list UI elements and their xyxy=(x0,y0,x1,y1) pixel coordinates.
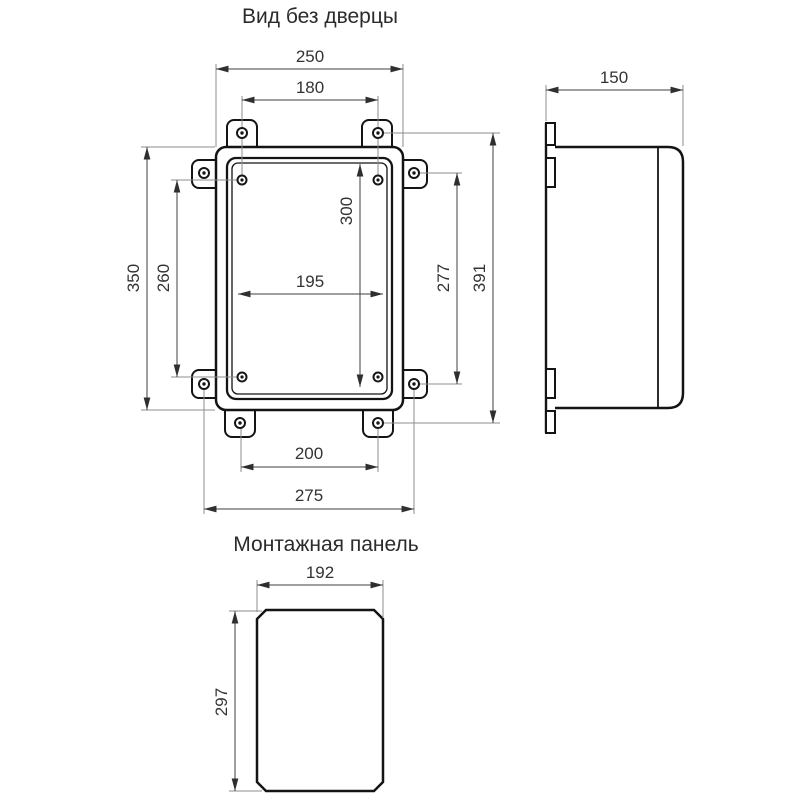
dim-label-350: 350 xyxy=(124,264,143,292)
technical-drawing-page: Вид без дверцы xyxy=(0,0,800,800)
hole-center-dot xyxy=(376,375,379,378)
hole-center-dot xyxy=(412,382,415,385)
dim-label-195: 195 xyxy=(296,272,324,291)
dim-label-250: 250 xyxy=(296,47,324,66)
front-view: Вид без дверцы xyxy=(124,5,500,514)
dim-label-391: 391 xyxy=(470,264,489,292)
dim-label-200: 200 xyxy=(295,444,323,463)
dim-label-180: 180 xyxy=(296,78,324,97)
dim-label-300: 300 xyxy=(337,197,356,225)
hole-center-dot xyxy=(238,421,241,424)
hole-center-dot xyxy=(202,382,205,385)
side-body-outline xyxy=(555,147,683,408)
hole-center-dot xyxy=(376,178,379,181)
dim-label-260: 260 xyxy=(154,264,173,292)
side-tab-top xyxy=(546,123,555,145)
enclosure-drawing: Вид без дверцы xyxy=(0,0,800,800)
dim-label-275: 275 xyxy=(295,486,323,505)
mounting-panel-outline xyxy=(257,610,383,791)
dim-label-192: 192 xyxy=(306,563,334,582)
panel-view-title: Монтажная панель xyxy=(233,533,418,556)
hole-center-dot xyxy=(376,421,379,424)
hole-center-dot xyxy=(240,131,243,134)
dim-label-277: 277 xyxy=(434,264,453,292)
side-tab-upper xyxy=(546,158,555,187)
dim-label-297: 297 xyxy=(212,688,231,716)
hole-center-dot xyxy=(202,171,205,174)
hole-center-dot xyxy=(412,171,415,174)
hole-center-dot xyxy=(240,375,243,378)
side-tab-lower xyxy=(546,369,555,398)
mounting-panel-view: Монтажная панель 192 297 xyxy=(212,533,419,791)
hole-center-dot xyxy=(376,131,379,134)
dim-label-150: 150 xyxy=(600,68,628,87)
side-view: 150 xyxy=(546,68,683,433)
hole-center-dot xyxy=(240,178,243,181)
side-tab-bottom xyxy=(546,411,555,433)
front-view-title: Вид без дверцы xyxy=(242,5,398,28)
